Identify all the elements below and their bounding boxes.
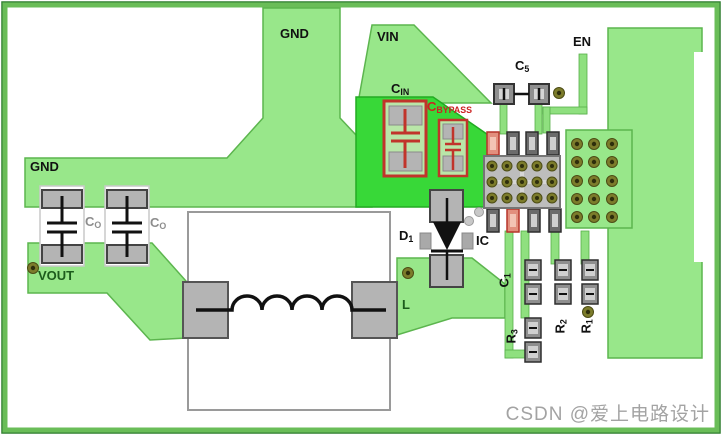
label-r2-base: R (553, 324, 568, 333)
ic-pin-bottom-1-core (490, 214, 496, 227)
output-capacitor-1 (40, 186, 84, 266)
label-co1-base: C (85, 214, 94, 229)
fb-trace-3 (551, 231, 559, 264)
label-r2: R2 (554, 313, 569, 339)
label-d1-base: D (399, 228, 408, 243)
label-d1: D1 (399, 229, 413, 244)
label-c5-sub: 5 (524, 64, 529, 74)
d1-wing-right (462, 233, 473, 249)
label-co2: CO (150, 216, 166, 231)
label-l: L (402, 298, 410, 311)
label-c1-base: C (497, 278, 512, 287)
label-co2-sub: O (159, 221, 166, 231)
label-en: EN (573, 35, 591, 48)
cbypass-capacitor (439, 120, 467, 176)
label-r2-sub: 2 (559, 319, 569, 324)
label-c1-sub: 1 (503, 273, 513, 278)
c5-trace-left (500, 103, 507, 134)
fb-trace-4 (581, 231, 589, 264)
ic-pin-top-1-core (490, 137, 496, 150)
watermark: CSDN @爱上电路设计 (506, 399, 710, 426)
label-co1: CO (85, 215, 101, 230)
ic-pin-top-3-core (529, 137, 535, 150)
label-ic: IC (476, 234, 489, 247)
label-c1: C1 (498, 267, 513, 293)
label-vin: VIN (377, 30, 399, 43)
label-c5: C5 (515, 59, 529, 74)
label-gnd-left: GND (30, 160, 59, 173)
label-cin-base: C (391, 81, 400, 96)
en-trace-vertical (579, 54, 587, 114)
label-vout: VOUT (38, 269, 74, 282)
label-c5-base: C (515, 58, 524, 73)
label-r3: R3 (505, 323, 520, 349)
label-cbypass-base: C (427, 99, 436, 114)
cin-capacitor (384, 101, 426, 176)
output-capacitor-2 (105, 186, 149, 266)
label-r3-base: R (504, 334, 519, 343)
d1-link-dot-2 (475, 208, 484, 217)
right-plane-slot (694, 52, 704, 262)
label-r1-sub: 1 (585, 319, 595, 324)
ic-pin-bottom-2-core (510, 214, 516, 227)
label-gnd-top: GND (280, 27, 309, 40)
ic-pin-bottom-4-core (552, 214, 558, 227)
inductor (183, 212, 397, 410)
ic-pin-top-4-core (550, 137, 556, 150)
fb-trace-stub (505, 350, 527, 358)
d1-wing-left (420, 233, 431, 249)
label-r3-sub: 3 (510, 329, 520, 334)
label-r1-base: R (579, 324, 594, 333)
label-co1-sub: O (94, 220, 101, 230)
pcb-layout-svg (0, 0, 722, 437)
label-co2-base: C (150, 215, 159, 230)
label-cbypass: CBYPASS (427, 100, 472, 115)
label-d1-sub: 1 (408, 234, 413, 244)
label-cbypass-sub: BYPASS (436, 105, 472, 115)
en-trace-drop (543, 107, 550, 133)
c5-trace-right (535, 103, 542, 134)
pcb-layout-screenshot: GND VIN EN GND C5 CIN CBYPASS CO CO VOUT… (0, 0, 722, 437)
d1-link-dot-1 (465, 217, 474, 226)
ic-pin-bottom-3-core (531, 214, 537, 227)
ic-pin-top-2-core (510, 137, 516, 150)
label-cin-sub: IN (400, 87, 409, 97)
label-r1: R1 (580, 313, 595, 339)
label-cin: CIN (391, 82, 409, 97)
